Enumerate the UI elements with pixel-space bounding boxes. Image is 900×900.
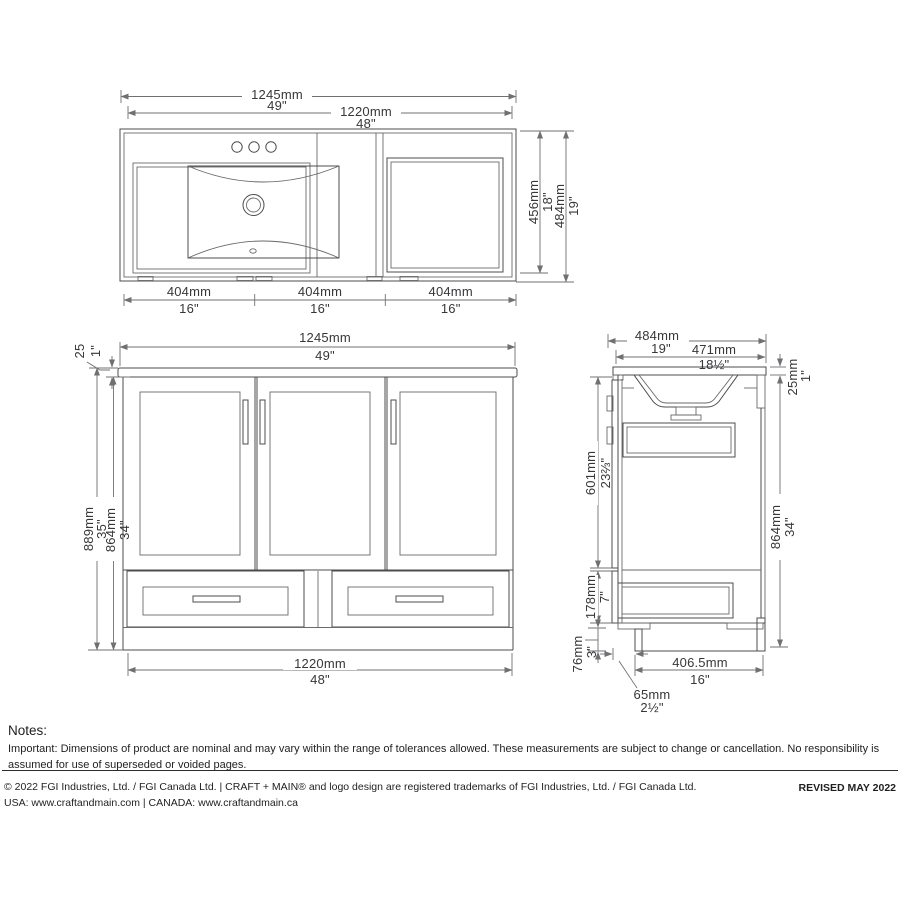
dim-front-cab-width-in: 48"	[310, 672, 330, 687]
dim-front-overall-in: 49"	[315, 348, 335, 363]
drawer-left	[127, 571, 304, 627]
side-view-dimensions: 484mm 19" 471mm 18½" 25mm 1" 864mm 34" 6…	[570, 328, 813, 715]
dim-side-cab-height-mm: 864mm	[768, 505, 783, 549]
upper-box-profile	[623, 423, 735, 457]
dim-front-cab-height-in: 34"	[117, 520, 132, 540]
dim-top-depth-in: 19"	[566, 196, 581, 216]
dim-side-door-mm: 601mm	[583, 451, 598, 495]
faucet-hole	[249, 142, 259, 152]
drawer-handle	[396, 596, 443, 602]
footer: © 2022 FGI Industries, Ltd. / FGI Canada…	[4, 780, 814, 812]
dim-side-counter-thk-in: 1"	[798, 370, 813, 382]
door-handle	[243, 400, 248, 444]
door-middle	[257, 377, 385, 570]
drawer-handle	[193, 596, 240, 602]
side-view	[607, 367, 766, 651]
dim-top-seg1-in: 16"	[179, 301, 199, 316]
top-view	[120, 129, 516, 281]
dim-side-front-gap-in: 2½"	[640, 700, 663, 715]
right-section-top-view	[387, 158, 503, 272]
dim-side-cab-height-in: 34"	[782, 517, 797, 537]
notes-heading: Notes:	[8, 723, 892, 738]
door-right	[387, 377, 513, 570]
dim-top-seg1-mm: 404mm	[167, 284, 211, 299]
footer-divider	[2, 770, 898, 771]
dim-side-door-in: 23⅔"	[598, 457, 613, 488]
dim-front-overall-mm: 1245mm	[299, 330, 351, 345]
dim-front-counter-mm: 25	[72, 344, 87, 359]
dim-side-drawer-in: 7"	[597, 591, 612, 603]
drawer-right	[332, 571, 509, 627]
dim-side-base-depth-mm: 406.5mm	[672, 655, 728, 670]
faucet-hole	[266, 142, 276, 152]
dim-side-counter-depth-in: 18½"	[699, 357, 730, 372]
dim-top-cab-in: 48"	[356, 116, 376, 131]
door-handle	[260, 400, 265, 444]
drawer-front-profile	[612, 571, 618, 623]
dim-top-depth-inner-mm: 456mm	[526, 180, 541, 224]
dim-side-toekick-mm: 76mm	[570, 636, 585, 673]
countertop-side	[613, 367, 766, 375]
dim-side-drawer-mm: 178mm	[583, 575, 598, 619]
faucet-hole	[232, 142, 242, 152]
dim-top-seg2-mm: 404mm	[298, 284, 342, 299]
front-leg	[635, 629, 642, 651]
dim-top-overall-in: 49"	[267, 98, 287, 113]
sink-bowl-profile	[634, 375, 738, 407]
spec-sheet: 1245mm 49" 1220mm 48" 456mm 18" 484mm 19…	[0, 0, 900, 900]
dim-side-counter-depth-mm: 471mm	[692, 342, 736, 357]
footer-copyright: © 2022 FGI Industries, Ltd. / FGI Canada…	[4, 780, 814, 796]
footer-urls: USA: www.craftandmain.com | CANADA: www.…	[4, 796, 814, 812]
dim-front-counter-in: 1"	[88, 345, 103, 357]
dim-side-depth-in: 19"	[651, 341, 671, 356]
dim-front-cab-height-mm: 864mm	[103, 508, 118, 552]
drain-profile	[676, 407, 696, 415]
dim-top-seg2-in: 16"	[310, 301, 330, 316]
drawer-box-profile	[618, 583, 733, 618]
countertop-front	[118, 368, 517, 377]
dim-front-cab-width-mm: 1220mm	[294, 656, 346, 671]
front-view	[118, 368, 517, 650]
dim-side-toekick-in: 3"	[584, 646, 599, 658]
door-handle	[391, 400, 396, 444]
door-left	[123, 377, 255, 570]
overflow-hole	[250, 249, 256, 253]
technical-drawing: 1245mm 49" 1220mm 48" 456mm 18" 484mm 19…	[0, 0, 900, 720]
dim-top-seg3-in: 16"	[441, 301, 461, 316]
notes-section: Notes: Important: Dimensions of product …	[8, 723, 892, 774]
dim-top-seg3-mm: 404mm	[429, 284, 473, 299]
dim-top-depth-mm: 484mm	[552, 184, 567, 228]
sink-top-view	[133, 142, 339, 273]
dim-side-base-depth-in: 16"	[690, 672, 710, 687]
revision-label: REVISED MAY 2022	[799, 782, 896, 794]
front-view-dimensions: 1245mm 49" 25 1" 889mm 35" 864mm 34" 122…	[72, 330, 515, 687]
